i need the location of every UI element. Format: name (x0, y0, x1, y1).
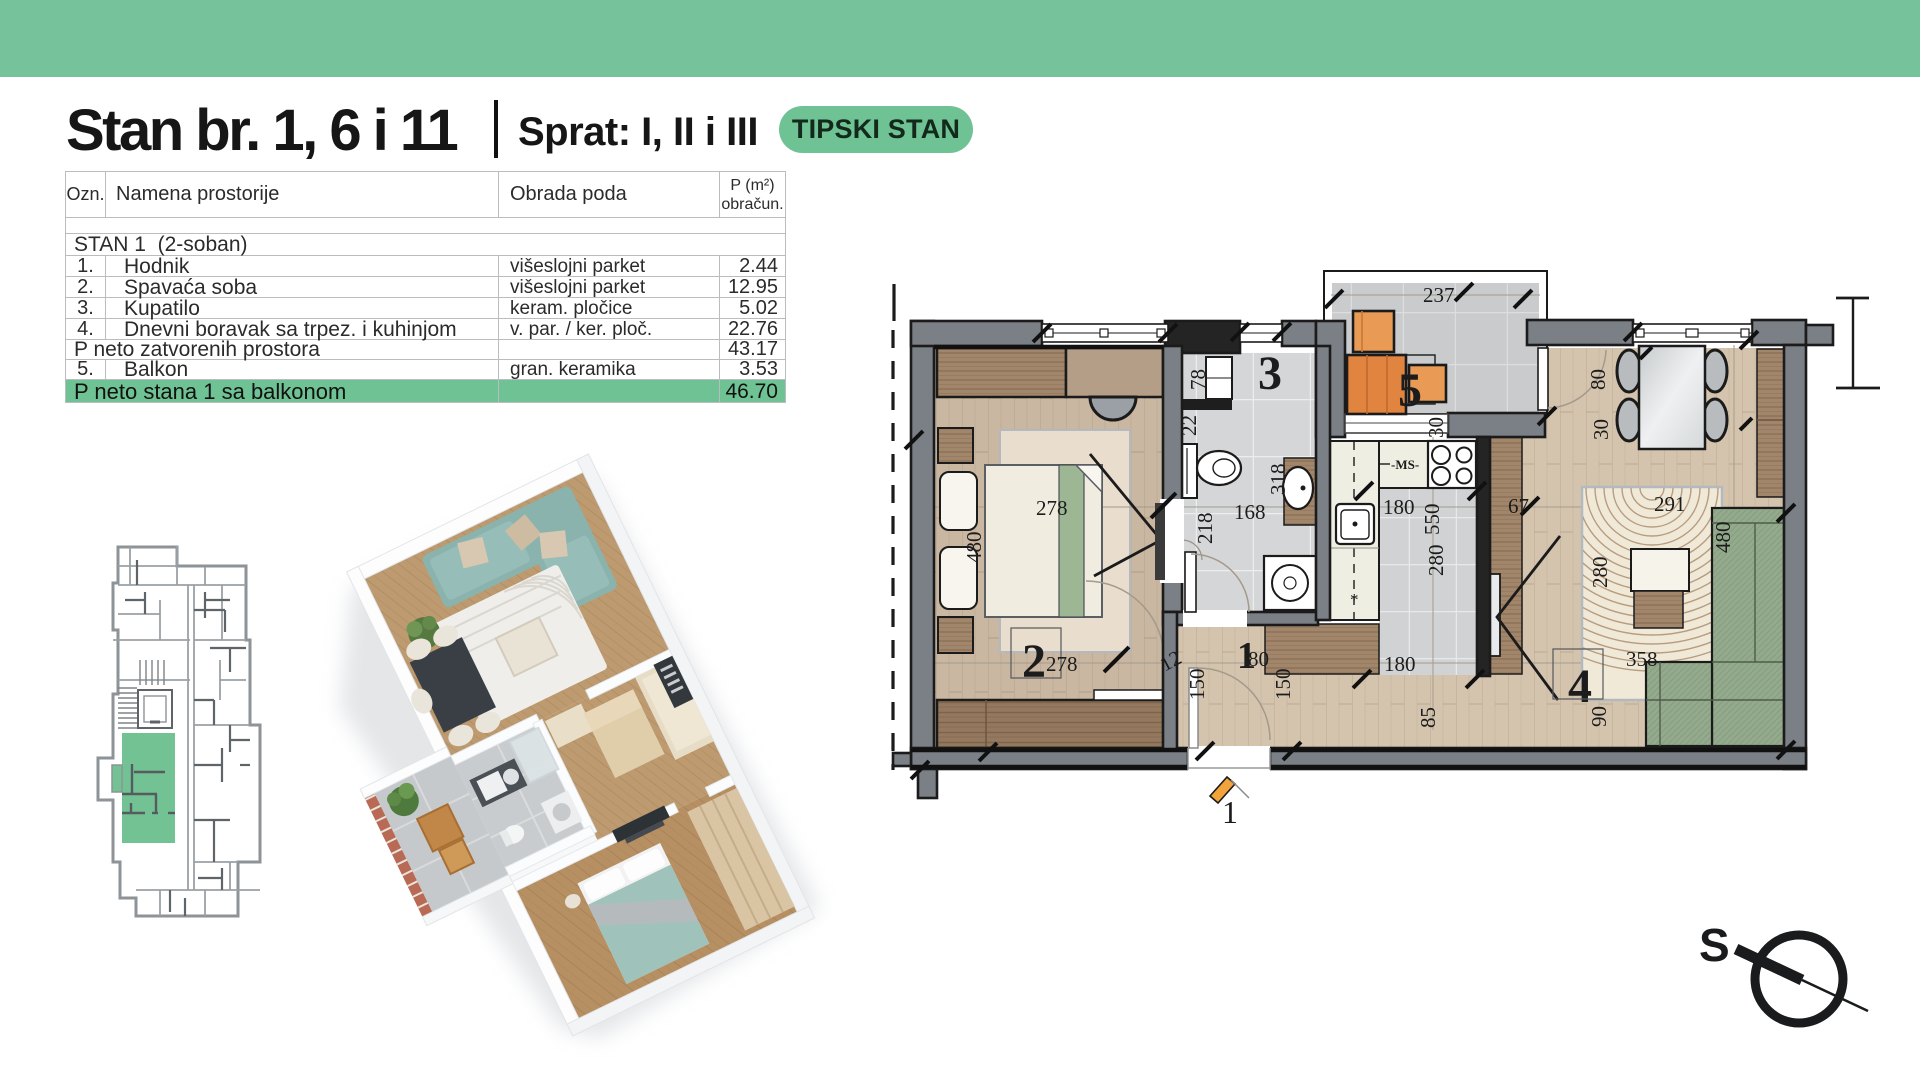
svg-text:22: 22 (1177, 415, 1201, 436)
svg-text:480: 480 (1711, 522, 1735, 554)
svg-text:291: 291 (1654, 492, 1686, 516)
svg-text:30: 30 (1424, 417, 1448, 438)
svg-text:280: 280 (1424, 545, 1448, 577)
svg-text:358: 358 (1626, 647, 1658, 671)
svg-text:150: 150 (1185, 669, 1209, 701)
svg-text:-MS-: -MS- (1391, 457, 1419, 472)
svg-text:*: * (1350, 590, 1359, 609)
svg-text:4: 4 (1568, 660, 1592, 713)
svg-text:278: 278 (1036, 496, 1068, 520)
svg-text:S: S (1699, 919, 1730, 971)
svg-text:90: 90 (1587, 706, 1611, 727)
svg-text:218: 218 (1193, 513, 1217, 545)
svg-text:5: 5 (1398, 364, 1422, 417)
svg-text:67: 67 (1508, 494, 1529, 518)
svg-text:80: 80 (1248, 647, 1269, 671)
svg-text:180: 180 (1384, 652, 1416, 676)
svg-text:150: 150 (1271, 669, 1295, 701)
svg-text:1: 1 (1222, 794, 1238, 830)
svg-text:168: 168 (1234, 500, 1266, 524)
svg-text:3: 3 (1258, 347, 1282, 400)
svg-text:30: 30 (1589, 419, 1613, 440)
svg-text:280: 280 (1588, 557, 1612, 589)
svg-text:78: 78 (1186, 369, 1210, 390)
svg-text:237: 237 (1423, 283, 1455, 307)
svg-text:2: 2 (1022, 635, 1046, 688)
svg-text:80: 80 (1586, 369, 1610, 390)
svg-text:85: 85 (1416, 707, 1440, 728)
svg-text:278: 278 (1046, 652, 1078, 676)
svg-text:318: 318 (1266, 464, 1290, 496)
svg-text:550: 550 (1420, 504, 1444, 536)
svg-text:480: 480 (962, 532, 986, 564)
svg-text:180: 180 (1383, 495, 1415, 519)
